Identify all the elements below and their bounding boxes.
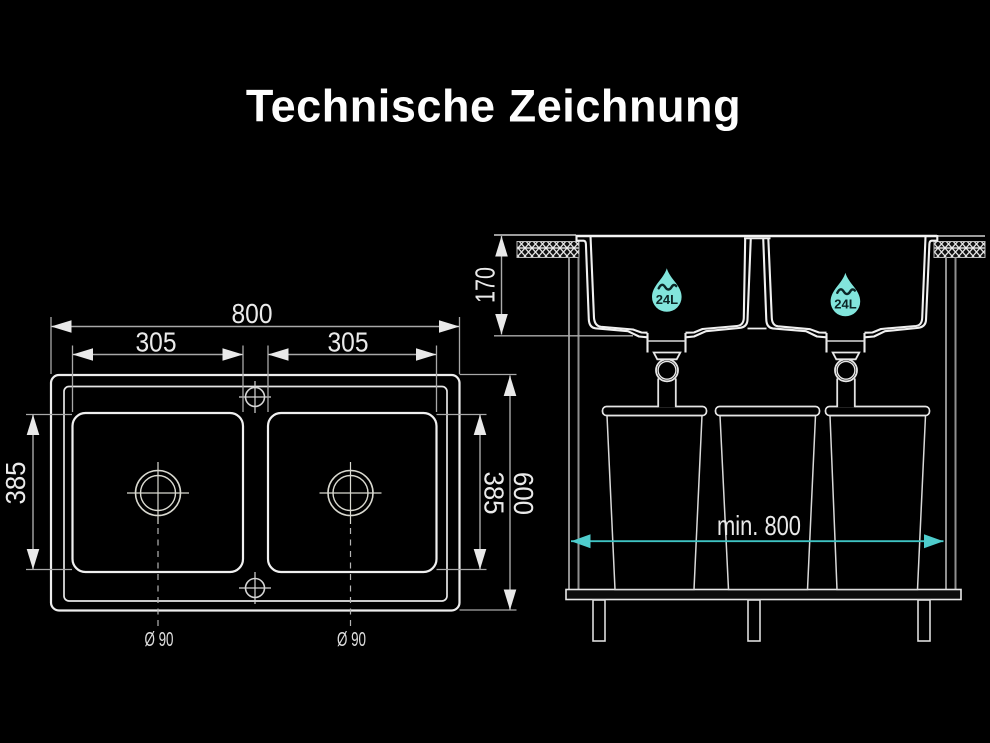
svg-text:Ø 90: Ø 90 <box>145 629 174 651</box>
svg-text:min. 800: min. 800 <box>717 510 801 541</box>
svg-text:305: 305 <box>136 327 177 358</box>
svg-text:170: 170 <box>470 267 501 303</box>
svg-text:800: 800 <box>232 298 273 329</box>
svg-text:600: 600 <box>508 472 539 515</box>
svg-text:385: 385 <box>0 462 31 505</box>
svg-text:305: 305 <box>328 327 369 358</box>
svg-text:Technische Zeichnung: Technische Zeichnung <box>246 81 741 132</box>
svg-text:Ø 90: Ø 90 <box>337 629 366 651</box>
svg-text:24L: 24L <box>656 292 678 307</box>
svg-text:24L: 24L <box>834 297 856 312</box>
svg-text:385: 385 <box>478 472 509 515</box>
